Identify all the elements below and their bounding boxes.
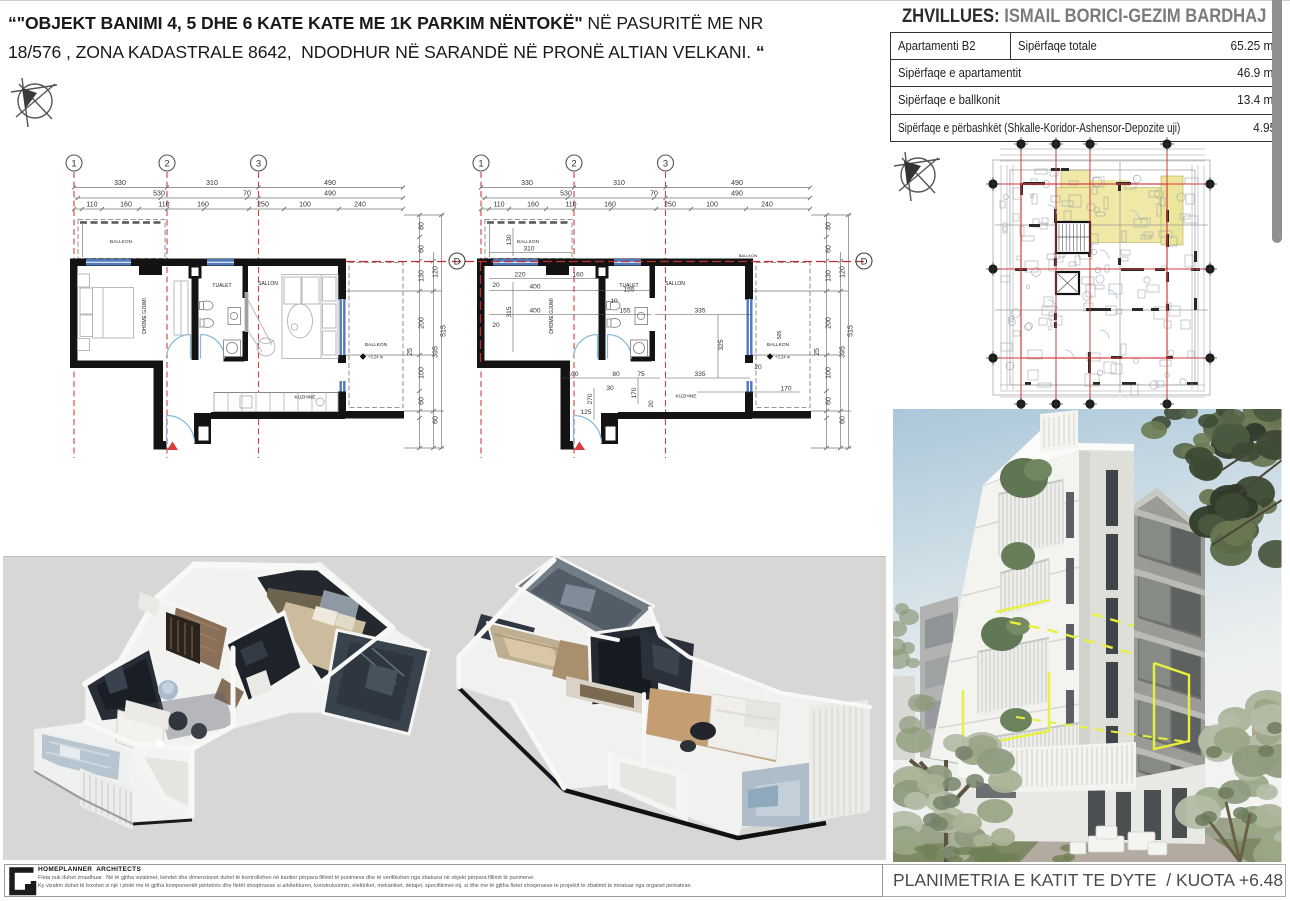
svg-text:505: 505 [777,331,783,340]
svg-text:25: 25 [407,348,414,356]
svg-text:20: 20 [754,364,762,371]
svg-text:310: 310 [206,180,218,187]
svg-text:240: 240 [354,202,366,209]
svg-text:3: 3 [256,159,261,170]
svg-text:DHOME GJUMI: DHOME GJUMI [142,298,148,334]
svg-text:160: 160 [120,202,132,209]
svg-text:60: 60 [419,245,426,253]
svg-text:80: 80 [419,222,426,230]
svg-text:400: 400 [529,308,540,315]
svg-text:170: 170 [780,386,791,393]
svg-text:TUALET: TUALET [212,283,231,289]
svg-text:100: 100 [567,371,578,378]
svg-text:325: 325 [718,339,725,350]
svg-text:D: D [861,257,868,268]
svg-text:335: 335 [694,308,705,315]
svg-text:250: 250 [257,202,269,209]
svg-text:100: 100 [299,202,311,209]
svg-text:155: 155 [619,308,630,315]
svg-text:110: 110 [158,202,169,209]
svg-text:20: 20 [492,282,500,289]
svg-text:220: 220 [514,272,525,279]
svg-text:20: 20 [648,400,655,408]
svg-text:490: 490 [324,191,336,198]
svg-text:75: 75 [637,371,645,378]
svg-text:270: 270 [587,393,594,404]
svg-text:80: 80 [612,371,620,378]
svg-text:490: 490 [324,180,336,187]
svg-text:110: 110 [86,202,97,209]
svg-text:60: 60 [419,397,426,405]
svg-text:160: 160 [572,272,583,279]
svg-text:KUZHINE: KUZHINE [294,395,315,401]
svg-text:310: 310 [523,246,534,253]
svg-text:330: 330 [114,180,126,187]
svg-text:120: 120 [433,266,440,278]
svg-text:200: 200 [419,317,426,329]
svg-text:KUZHINE: KUZHINE [675,394,696,400]
svg-text:530: 530 [153,191,165,198]
svg-text:170: 170 [631,387,638,398]
svg-text:400: 400 [529,284,540,291]
svg-text:125: 125 [580,409,591,416]
svg-text:+3.24 m: +3.24 m [368,355,384,360]
svg-text:155: 155 [623,287,634,294]
svg-text:130: 130 [419,270,426,282]
svg-text:BALLKON: BALLKON [739,253,758,258]
svg-text:D: D [454,257,461,268]
svg-text:160: 160 [197,202,209,209]
svg-text:2: 2 [164,159,169,170]
svg-text:395: 395 [433,346,440,358]
svg-text:515: 515 [441,325,448,337]
svg-text:130: 130 [506,234,513,245]
svg-text:100: 100 [419,367,426,379]
svg-text:70: 70 [243,191,251,198]
svg-text:SALLON: SALLON [258,281,278,287]
svg-text:315: 315 [506,306,513,317]
svg-text:1: 1 [71,159,76,170]
svg-text:10: 10 [610,298,618,305]
svg-text:BALLKON: BALLKON [767,342,790,348]
svg-text:30: 30 [606,385,614,392]
svg-text:BALLKON: BALLKON [365,342,388,348]
svg-text:20: 20 [492,322,500,329]
svg-text:335: 335 [694,371,705,378]
svg-text:60: 60 [433,416,440,424]
svg-text:BALLKON: BALLKON [110,239,133,245]
